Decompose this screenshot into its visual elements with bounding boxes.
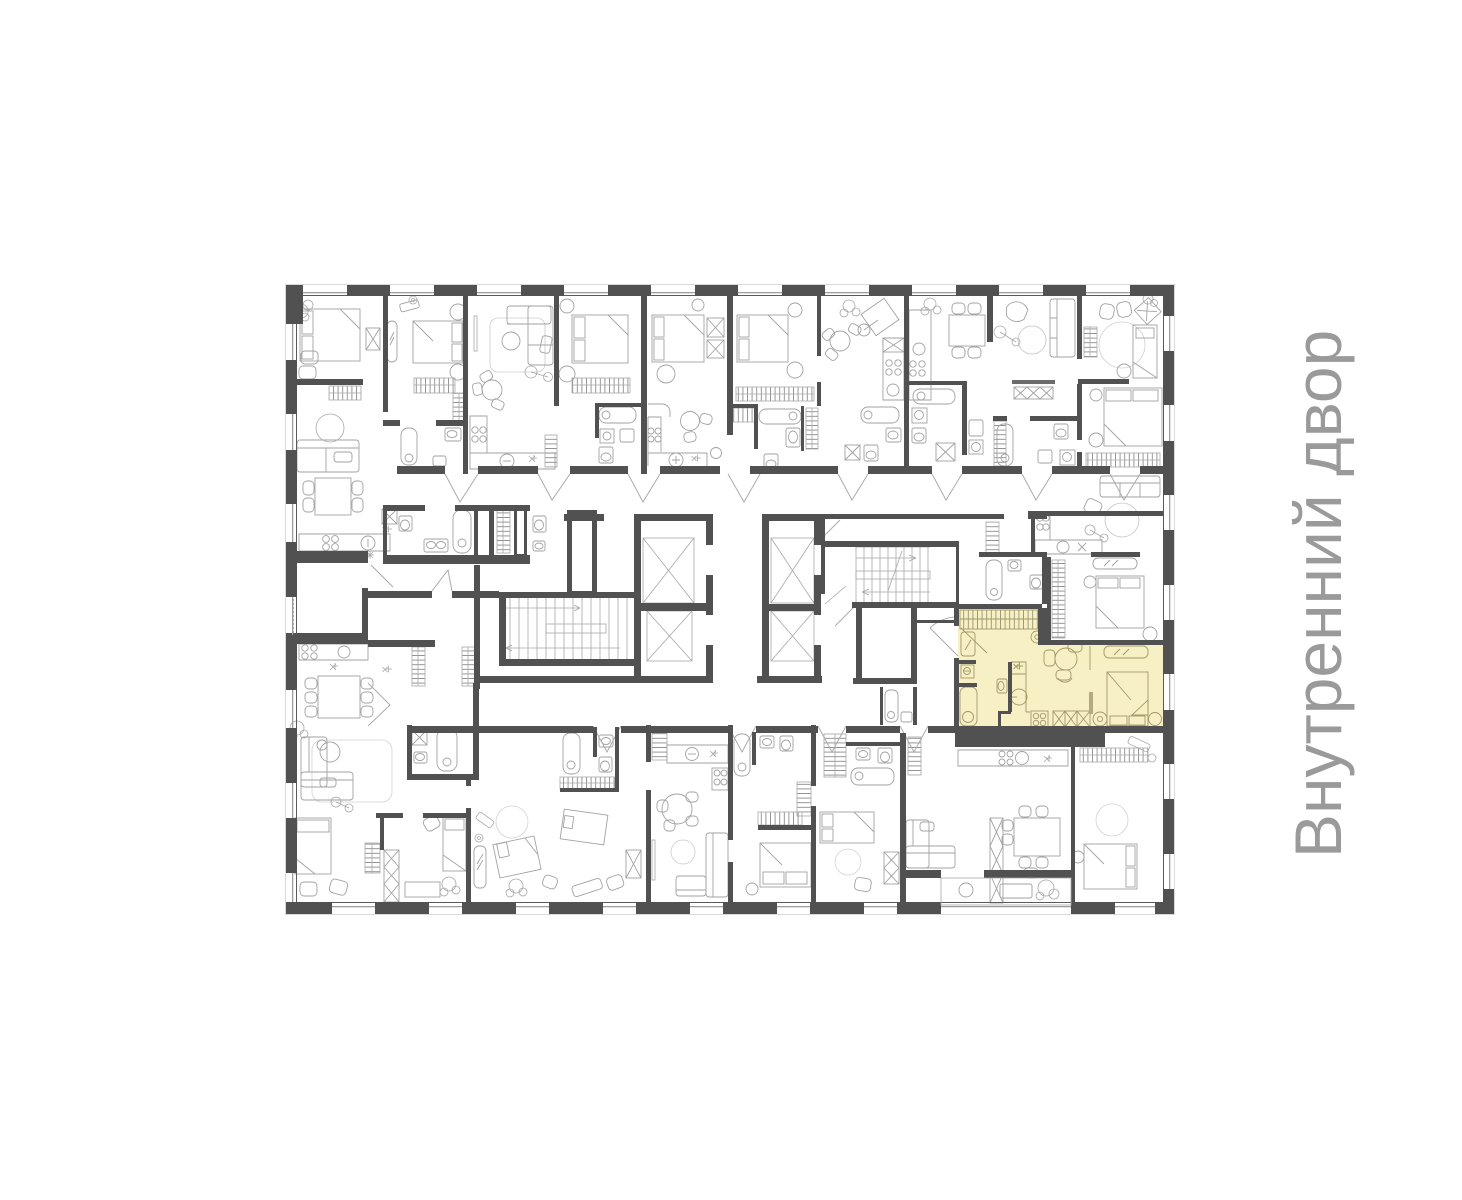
svg-text:Внутренний двор: Внутренний двор — [1281, 330, 1355, 858]
